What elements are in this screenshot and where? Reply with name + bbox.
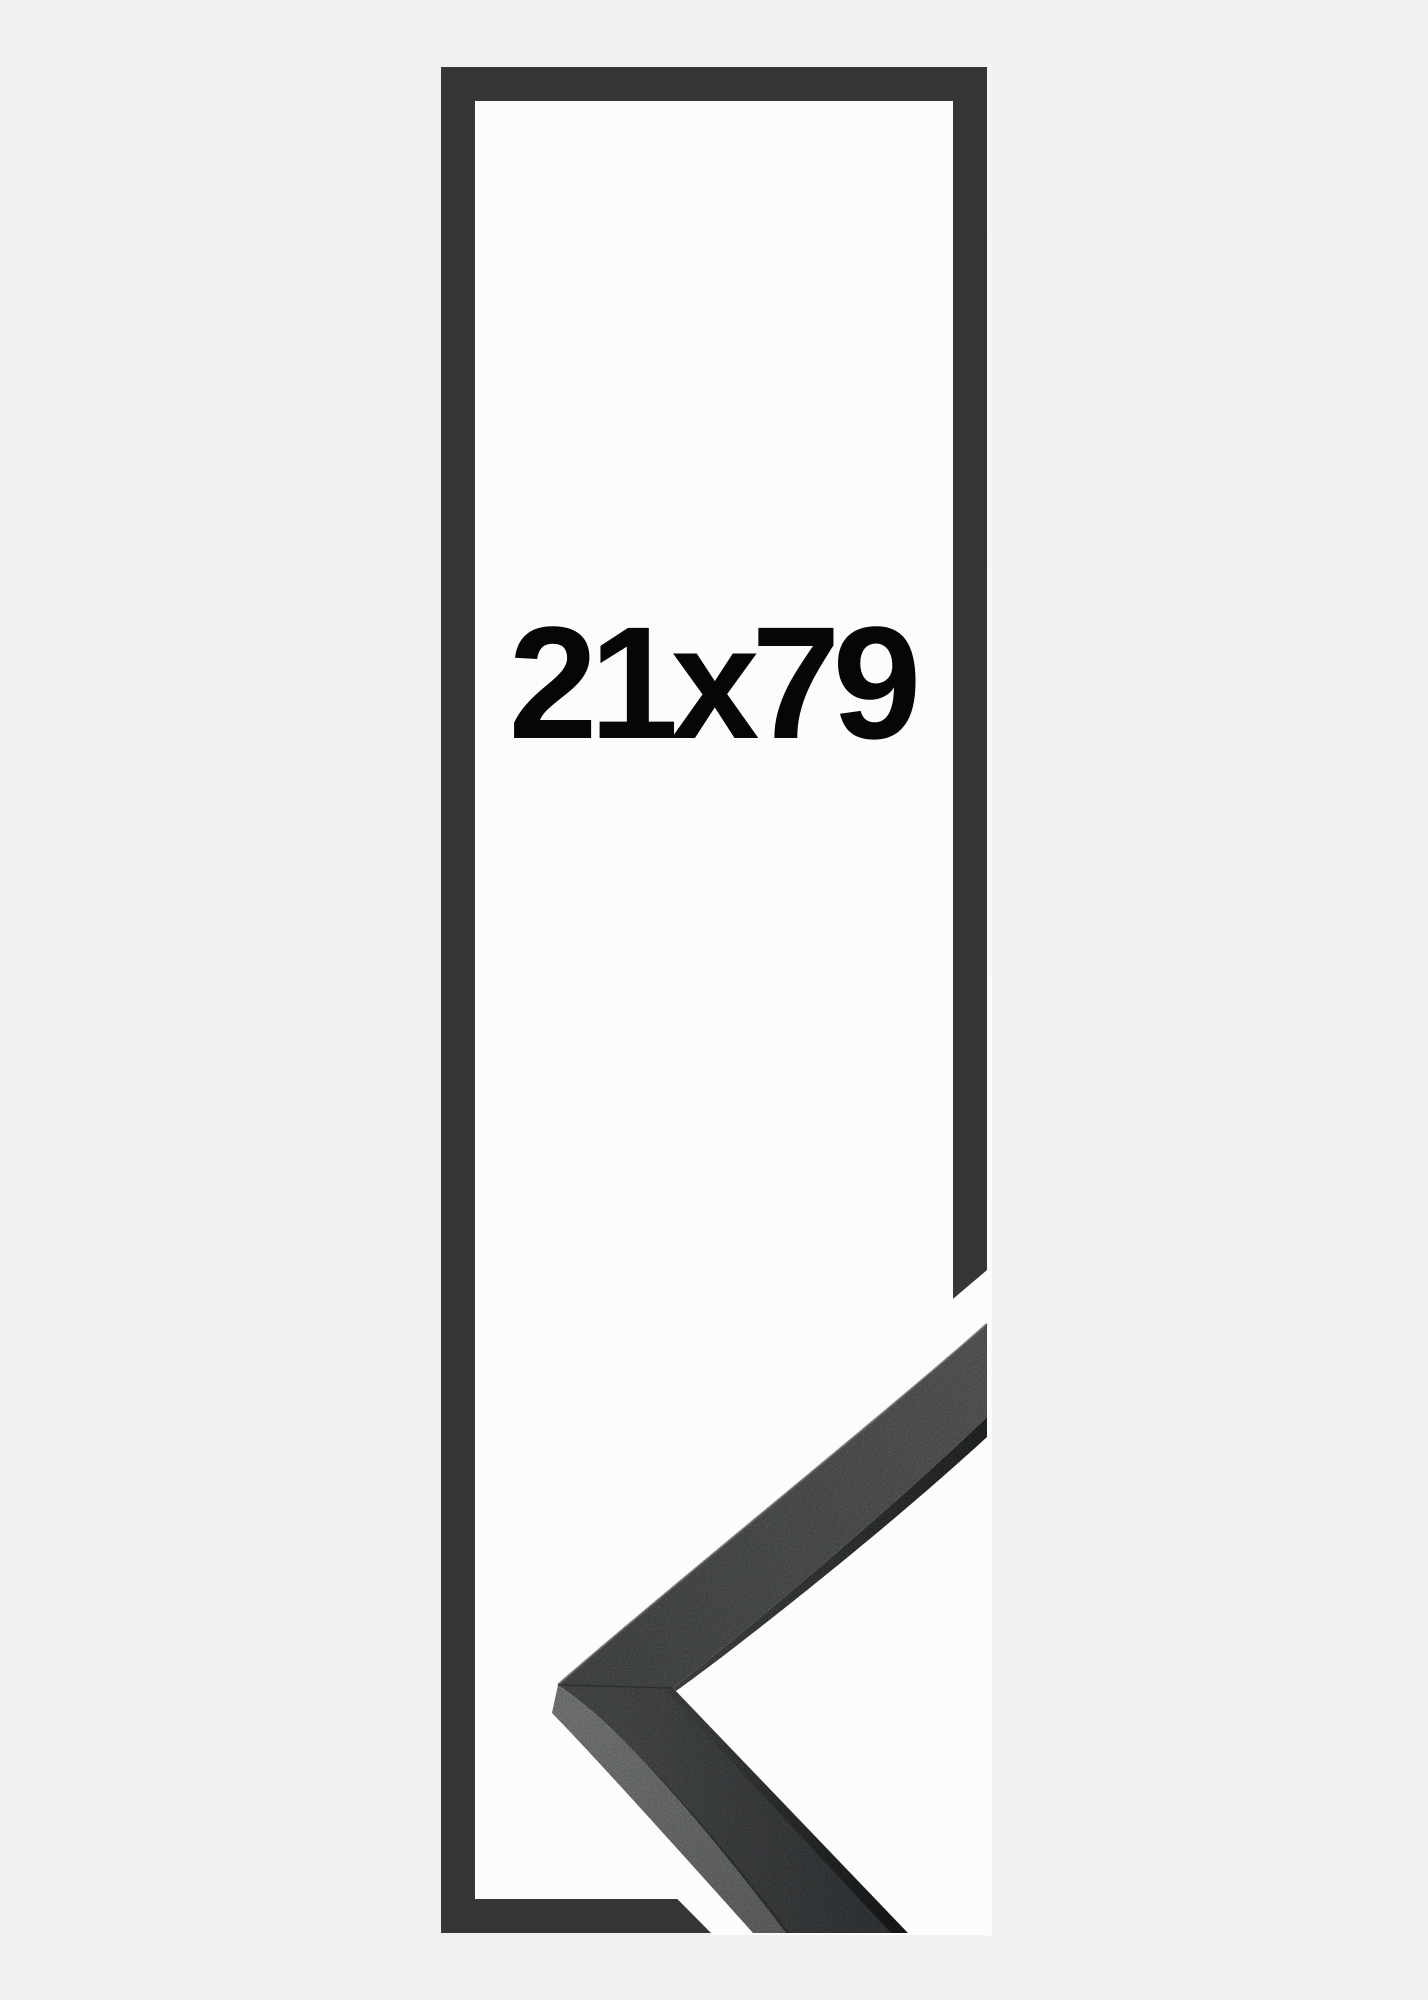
svg-text:21x79: 21x79: [509, 593, 917, 772]
